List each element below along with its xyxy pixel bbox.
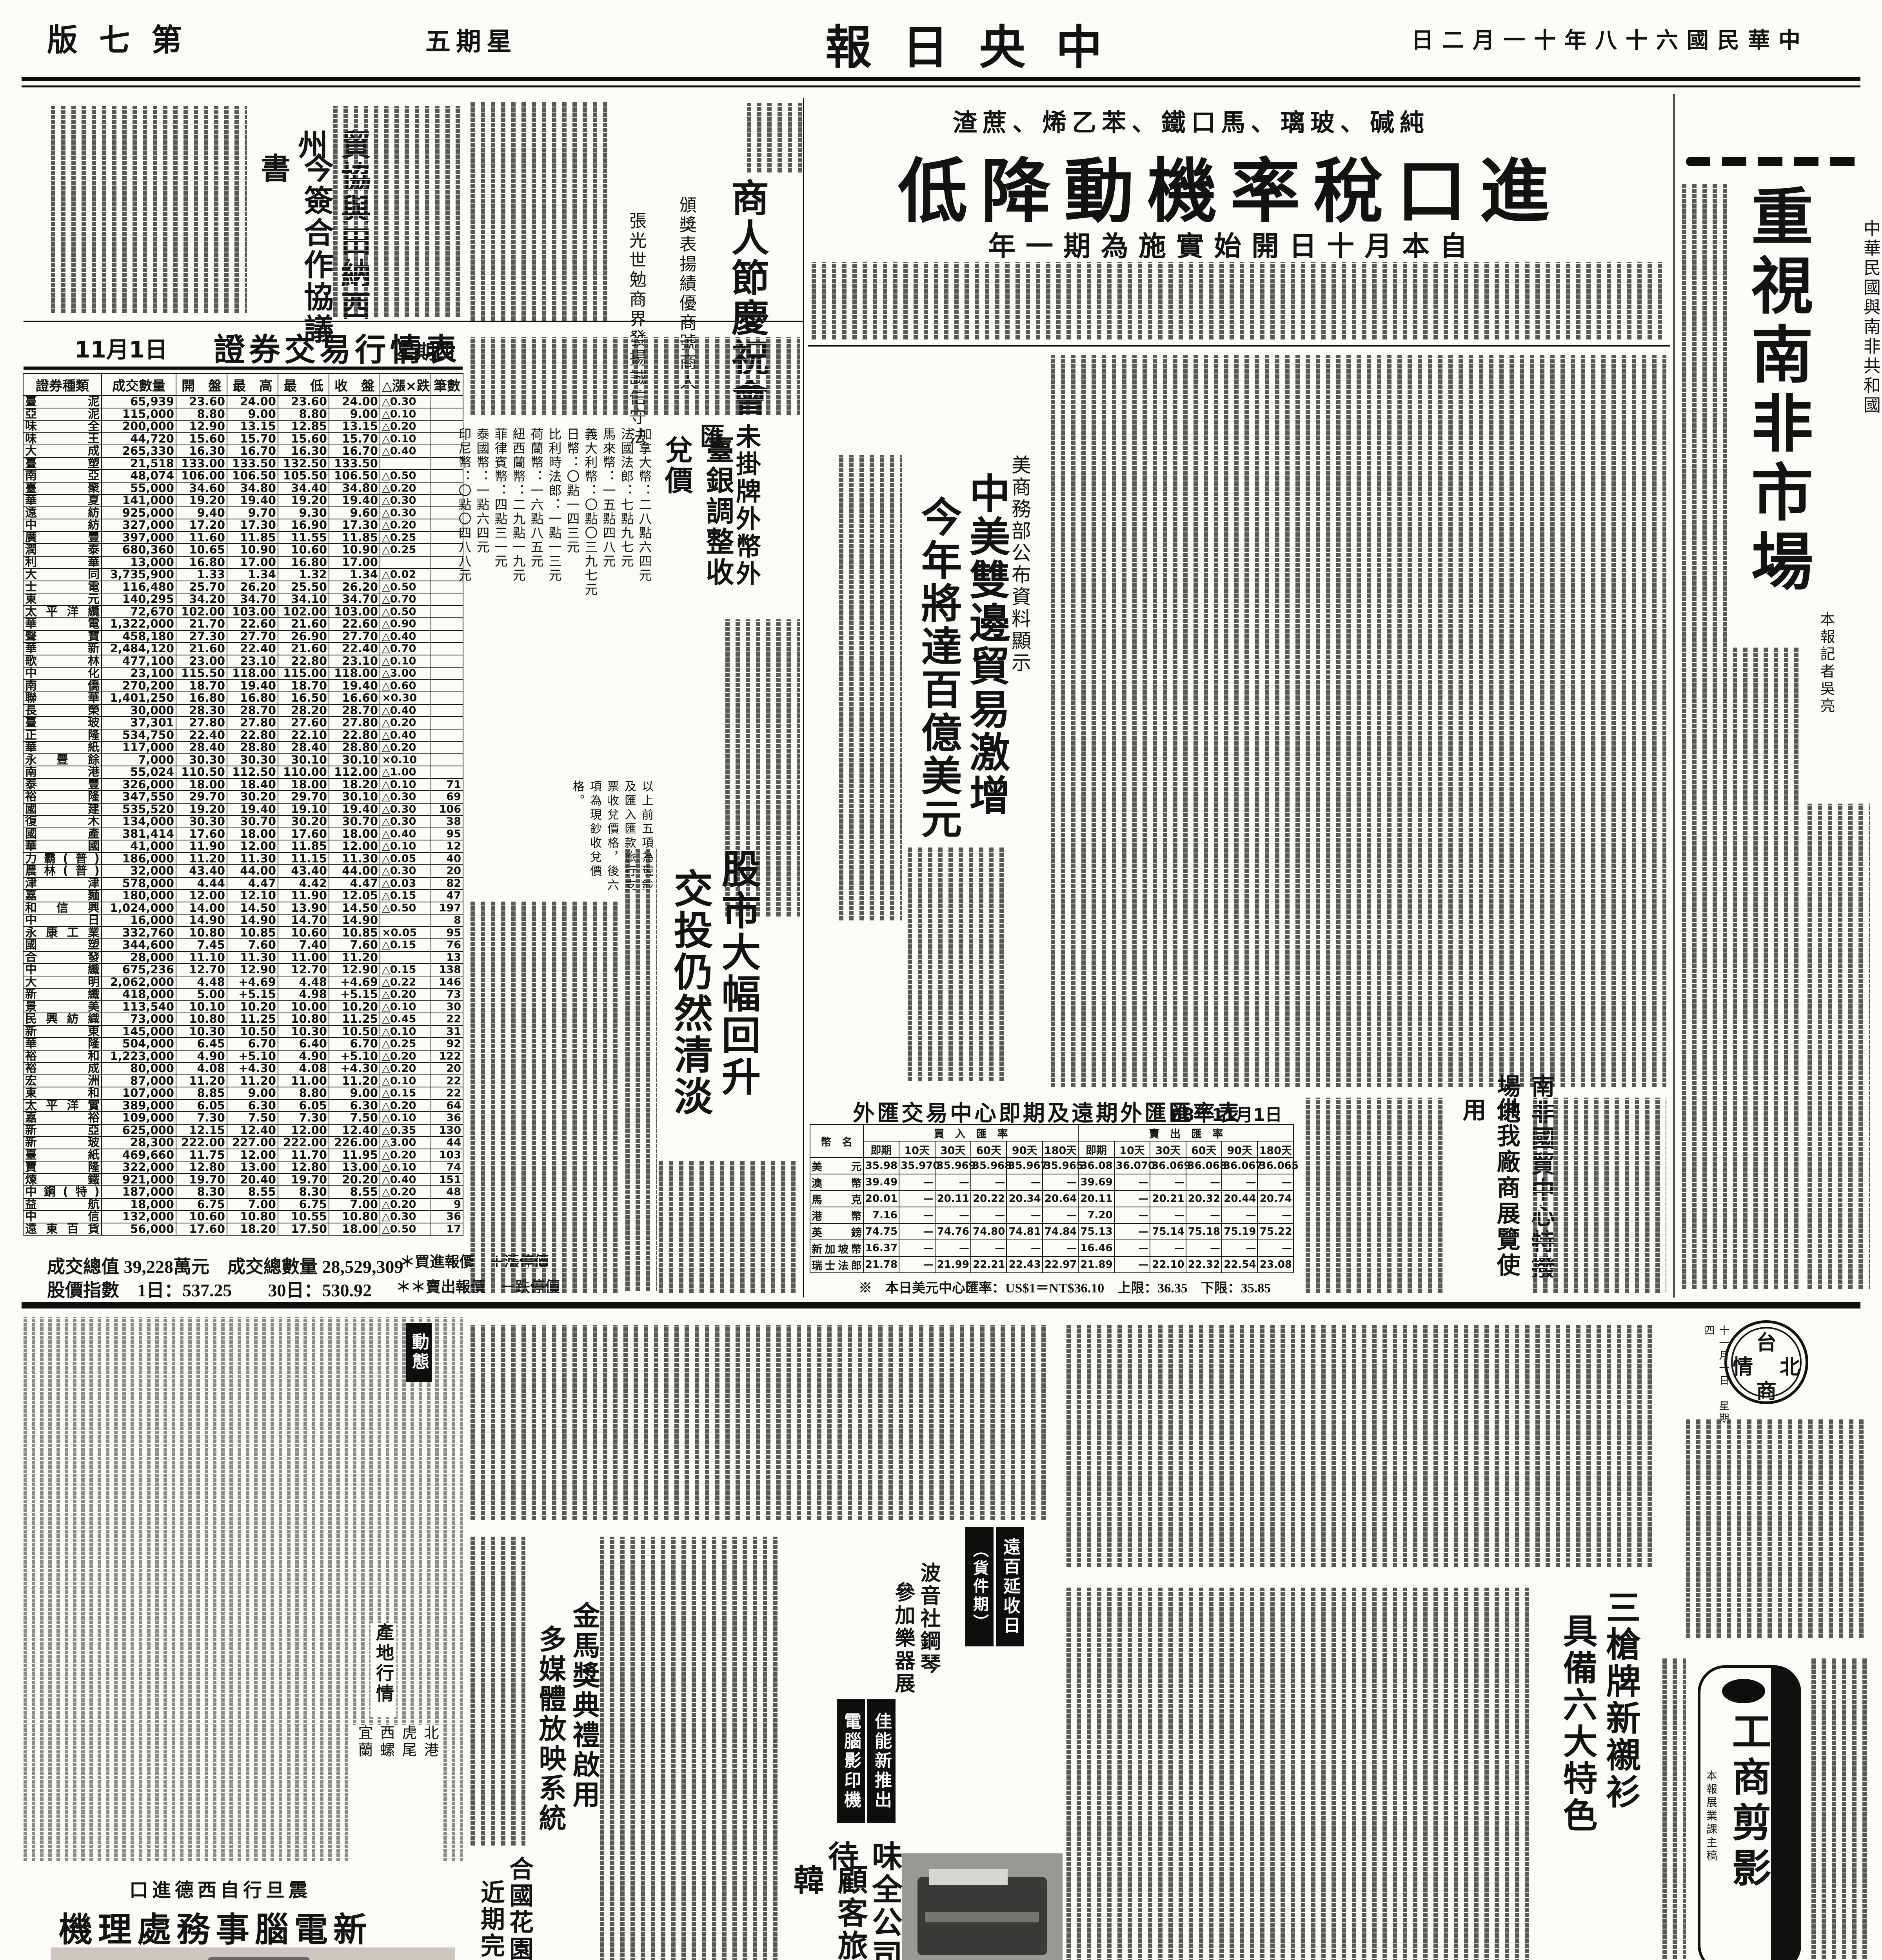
- section-rule: [808, 345, 1670, 347]
- goldhorse-headline-1: 金馬獎典禮啟用: [564, 1601, 603, 1821]
- body-text-block: [839, 455, 902, 921]
- body-text-block: [1533, 1098, 1666, 1294]
- masthead-rule-1: [22, 77, 1860, 81]
- body-text-block: [600, 1537, 780, 1960]
- table-row: 新纖418,0005.00+5.154.98+5.15△0.2073: [23, 988, 463, 1001]
- body-text-block: [1066, 1325, 1655, 1568]
- stock-table-weekday: 星期四: [396, 336, 455, 365]
- table-row: 中化23,100115.50118.00115.00118.00△3.00: [23, 667, 463, 680]
- stock-summary-2: 股價指數 1日：537.25 30日：530.92: [47, 1276, 372, 1302]
- table-row: 士電116,48025.7026.2025.5026.20△0.50: [23, 581, 463, 593]
- table-row: 新加坡幣16.37—————16.46—————: [810, 1240, 1293, 1256]
- table-row: 農林(普)32,00043.4044.0043.4044.00△0.3020: [23, 865, 463, 877]
- industry-banner-box: 工商剪影 本報展業課主稿: [1698, 1665, 1801, 1960]
- table-row: 美元35.9835.97035.96935.96835.96735.96536.…: [810, 1158, 1293, 1174]
- list-item: 比利時法郎：一點一三元: [545, 427, 563, 772]
- seal-char: 商: [1756, 1375, 1777, 1404]
- list-item: 馬來幣：一五點四八元: [599, 427, 617, 772]
- table-row: 津津578,0004.444.474.424.47△0.0382: [23, 877, 463, 890]
- seal-char: 情: [1733, 1350, 1753, 1380]
- shirts-headline-2: 具備六大特色: [1552, 1613, 1602, 1856]
- body-text-block: [1686, 1419, 1866, 1639]
- table-row: 正隆534,75022.4022.8022.1022.80△0.40: [23, 729, 463, 742]
- weichuan-headline-2: 顧客旅遊日韓: [784, 1864, 872, 1960]
- table-row: 裕隆347,55029.7030.2029.7030.10△0.3069: [23, 791, 463, 803]
- table-row: 裕和1,223,0004.90+5.104.90+5.10△0.20122: [23, 1050, 463, 1063]
- table-row: 華隆504,0006.456.706.406.70△0.2592: [23, 1038, 463, 1050]
- masthead-title: 中央日報: [825, 10, 1133, 77]
- table-row: 華電1,322,00021.7022.6021.6022.60△0.90: [23, 618, 463, 630]
- aurora-kicker: 震旦行自西德進口: [129, 1875, 311, 1902]
- office-machine-photo: [51, 1947, 455, 1960]
- body-text-block: [470, 102, 612, 321]
- table-row: 潤泰680,36010.6510.9010.6010.90△0.25: [23, 544, 463, 556]
- list-item: 西螺: [375, 1725, 397, 1905]
- table-row: 東和107,0008.859.008.809.00△0.1522: [23, 1087, 463, 1100]
- body-text-block: [1066, 1588, 1529, 1960]
- stock-table-header-row: 證券種類成交數量 開 盤最 高 最 低收 盤 △漲×跌筆數: [23, 374, 463, 396]
- copier-lid: [929, 1869, 1008, 1885]
- table-row: 中紡327,00017.2017.3016.9017.30△0.20: [23, 519, 463, 532]
- band-rule: [22, 1302, 1860, 1308]
- dynamics-label: 動態: [406, 1333, 431, 1372]
- table-top-rule: [24, 367, 463, 370]
- body-text-block: [470, 902, 619, 1294]
- list-item: 泰國幣：一點六四元: [472, 427, 490, 772]
- table-row: 味全200,00012.9013.1512.8513.15△0.20: [23, 420, 463, 433]
- table-row: 臺玻37,30127.8027.8027.6027.80△0.20: [23, 717, 463, 729]
- table-row: 瑞士法郎21.78—21.9922.2122.4322.9721.89—22.1…: [810, 1256, 1293, 1273]
- industry-banner-sub: 本報展業課主稿: [1703, 1770, 1719, 1927]
- list-item: 印尼幣：〇點〇四八八元: [454, 427, 472, 772]
- table-row: 力霸(普)186,00011.2011.3011.1511.30△0.0540: [23, 853, 463, 865]
- table-row: 嘉裕109,0007.307.507.307.50△0.1036: [23, 1112, 463, 1124]
- body-text-block: [1682, 184, 1727, 1290]
- lead-byline: 本報記者吳亮: [1815, 612, 1837, 776]
- table-row: 中信132,00010.6010.8010.5510.80△0.3036: [23, 1210, 463, 1223]
- aurora-headline: 新電腦事務處理機: [59, 1902, 372, 1951]
- table-row: 國塑344,6007.457.607.407.60△0.1576: [23, 939, 463, 951]
- body-text-block: [625, 849, 657, 1292]
- unlisted-fx-rates: 加拿大幣：二八點六四元法國法郎：七點九七元馬來幣：一五點四八元義大利幣：〇點〇三…: [543, 427, 653, 772]
- seal-char: 台: [1756, 1326, 1777, 1356]
- table-row: 南亞48,074106.00106.50105.50106.50△0.50: [23, 470, 463, 482]
- tariff-headline: 進口稅率機動降低: [898, 135, 1563, 236]
- table-row: 大明2,062,0004.48+4.694.48+4.69△0.22146: [23, 976, 463, 989]
- body-text-block: [1733, 647, 1804, 1290]
- seal-char: 北: [1780, 1350, 1800, 1380]
- table-row: 大成265,33016.3016.7016.3016.70△0.40: [23, 445, 463, 457]
- body-text-block: [908, 847, 1006, 1082]
- piano-headline-1: 波音社鋼琴: [914, 1562, 943, 1688]
- industry-banner-title: 工商剪影: [1719, 1711, 1776, 1931]
- body-text-block: [659, 1160, 800, 1294]
- goldhorse-headline-2: 多媒體放映系統: [530, 1625, 570, 1844]
- ornament-divider: [1686, 157, 1862, 166]
- fareast-label-1: 遠百延收日: [997, 1538, 1023, 1636]
- table-row: 東元140,29534.2034.7034.1034.70△0.70: [23, 593, 463, 606]
- body-text-block: [470, 337, 800, 416]
- table-row: 味王44,72015.6015.7015.6015.70△0.10: [23, 433, 463, 445]
- table-row: 臺塑21,518133.00133.50132.50133.50: [23, 457, 463, 470]
- shirts-headline-1: 三槍牌新襯衫: [1595, 1590, 1645, 1833]
- table-row: 國建535,52019.2019.4019.1019.40△0.30106: [23, 803, 463, 816]
- taipei-market-seal: 台 北 商 情: [1724, 1320, 1808, 1404]
- table-row: 南僑270,20018.7019.4018.7019.40△0.60: [23, 680, 463, 692]
- list-item: 日幣：〇點一四三元: [563, 427, 581, 772]
- body-text-block: [1808, 804, 1870, 1290]
- table-row: 永康工業332,76010.8010.8510.6010.85×0.0595: [23, 927, 463, 939]
- table-row: 華新2,484,12021.6022.4021.6022.40△0.70: [23, 642, 463, 655]
- tariff-kicker: 純碱、玻璃、馬口鐵、苯乙烯、蔗渣: [953, 103, 1430, 138]
- canon-box-2: 電腦影印機: [837, 1699, 865, 1823]
- fx-group-header: 幣 名 買 入 匯 率 賣 出 匯 率: [810, 1125, 1293, 1141]
- table-row: 嘉麵180,00012.0012.1011.9012.05△0.1547: [23, 889, 463, 902]
- copier-photo: [902, 1853, 1063, 1960]
- list-item: 加拿大幣：二八點六四元: [635, 427, 653, 772]
- body-text-block: [1051, 355, 1666, 1088]
- produce-label: 產地行情: [371, 1623, 396, 1717]
- table-row: 太平洋纜72,670102.00103.00102.00103.00△0.50: [23, 606, 463, 618]
- table-row: 新亞625,00012.1512.4012.0012.40△0.35130: [23, 1124, 463, 1137]
- table-row: 新玻28,300222.00227.00222.00226.00△3.0044: [23, 1136, 463, 1149]
- column-rule-mid: [803, 98, 804, 1298]
- stocknews-headline-2: 交投仍然清淡: [661, 868, 718, 1158]
- table-row: 煉鐵921,00019.7020.4019.7020.20△0.40151: [23, 1174, 463, 1186]
- table-row: 臺紙469,66011.7512.0011.7011.95△0.20103: [23, 1149, 463, 1161]
- table-row: 中日16,00014.9014.9014.7014.908: [23, 914, 463, 927]
- list-item: 法國法郎：七點九七元: [617, 427, 635, 772]
- list-item: 北港: [419, 1725, 441, 1905]
- lead-kicker: 中華民國與南非共和國: [1858, 220, 1882, 808]
- list-item: 宜蘭: [353, 1725, 375, 1905]
- table-row: 泰豐326,00018.0018.4018.0018.20△0.1071: [23, 779, 463, 791]
- body-text-block: [470, 1325, 1051, 1521]
- table-row: 和信興1,024,00014.0014.5013.9014.50△0.50197: [23, 902, 463, 915]
- table-row: 大同3,735,9001.331.341.321.34△0.02: [23, 568, 463, 581]
- fx-table: 幣 名 買 入 匯 率 賣 出 匯 率 即期10天 30天60天 90天180天…: [810, 1124, 1294, 1273]
- table-row: 民興紡織73,00010.8011.2510.8011.25△0.4522: [23, 1013, 463, 1025]
- table-row: 歌林477,10023.0023.1022.8023.10△0.10: [23, 655, 463, 668]
- table-row: 利華13,00016.8017.0016.8017.00: [23, 556, 463, 569]
- canon-box-1: 佳能新推出: [867, 1699, 896, 1823]
- body-text-block: [747, 103, 802, 173]
- table-row: 長榮30,00028.3028.7028.2028.70△0.40: [23, 704, 463, 717]
- seal-side-note: 十一月一日 星期四: [1702, 1325, 1731, 1427]
- table-row: 永豐餘7,00030.3030.3030.1030.10×0.10: [23, 754, 463, 766]
- machine-2: [208, 1957, 310, 1960]
- table-row: 太平洋實389,0006.056.306.056.30△0.2064: [23, 1100, 463, 1112]
- trade-headline-2: 今年將達百億美元: [908, 496, 967, 841]
- fx-footnote: ※ 本日美元中心匯率：US$1＝NT$36.10 上限：36.35 下限：35.…: [859, 1277, 1271, 1296]
- list-item: 菲律賓幣：四點三一元: [490, 427, 509, 772]
- list-item: 紐西蘭幣：二九點一九元: [509, 427, 527, 772]
- body-text-block: [812, 262, 1666, 340]
- dynamics-label-box: 動態: [406, 1323, 432, 1382]
- table-row: 臺泥65,93923.6024.0023.6024.00△0.30: [23, 396, 463, 408]
- table-row: 中鋼(特)187,0008.308.558.308.55△0.2048: [23, 1186, 463, 1198]
- stock-table-date: 11月1日: [74, 331, 167, 364]
- fareast-box-2: （貨件期）: [965, 1527, 994, 1646]
- table-row: 廣豐397,00011.6011.8511.5511.85△0.25: [23, 532, 463, 544]
- stock-table: 證券種類成交數量 開 盤最 高 最 低收 盤 △漲×跌筆數 臺泥65,93923…: [23, 373, 463, 1236]
- table-row: 聯華1,401,25016.8016.8016.5016.60×0.30: [23, 692, 463, 704]
- table-row: 合發28,00011.1011.3011.0011.2013: [23, 951, 463, 964]
- table-row: 宏洲87,00011.2011.2011.0011.20△0.1022: [23, 1075, 463, 1087]
- fx-sub-header: 即期10天 30天60天 90天180天 即期10天 30天60天 90天180…: [810, 1141, 1293, 1158]
- stock-table-body: 臺泥65,93923.6024.0023.6024.00△0.30亞泥115,0…: [23, 396, 463, 1235]
- column-rule-right: [1673, 94, 1675, 1298]
- table-row: 澳幣39.49—————39.69—————: [810, 1174, 1293, 1191]
- table-row: 南港55,024110.50112.50110.00112.00△1.00: [23, 766, 463, 779]
- table-row: 華國41,00011.9012.0011.8512.00△0.1012: [23, 840, 463, 853]
- banner-dot-icon: [1722, 1679, 1765, 1703]
- table-row: 華夏141,00019.2019.4019.2019.40△0.30: [23, 494, 463, 507]
- table-row: 馬克20.01—20.1120.2220.3420.6420.11—20.212…: [810, 1191, 1293, 1207]
- table-row: 聲寶458,18027.3027.7026.9027.70△0.40: [23, 630, 463, 643]
- edition-label: 第七版: [47, 16, 203, 60]
- body-text-block: [1811, 1658, 1870, 1960]
- piano-headline-2: 參加樂器展: [888, 1582, 917, 1699]
- table-row: 復木134,00030.3030.7030.2030.70△0.3038: [23, 815, 463, 828]
- table-row: 裕成80,0004.08+4.304.08+4.30△0.2020: [23, 1062, 463, 1075]
- table-row: 臺聚55,00034.6034.8034.4034.80△0.20: [23, 482, 463, 495]
- canon-label-2: 電腦影印機: [838, 1712, 863, 1810]
- table-row: 景美113,54010.1010.2010.0010.20△0.1030: [23, 1001, 463, 1013]
- table-row: 新東145,00010.3010.5010.3010.50△0.1031: [23, 1025, 463, 1038]
- fx-table-body: 美元35.9835.97035.96935.96835.96735.96536.…: [810, 1158, 1293, 1273]
- table-row: 華紙117,00028.4028.8028.4028.80△0.20: [23, 741, 463, 754]
- table-row: 港幣7.16—————7.20—————: [810, 1207, 1293, 1223]
- table-row: 亞泥115,0008.809.008.809.00△0.10: [23, 408, 463, 421]
- table-row: 國產381,41417.6018.0017.6018.00△0.4095: [23, 828, 463, 840]
- body-text-block: [333, 106, 463, 318]
- fareast-box-1: 遠百延收日: [996, 1527, 1024, 1646]
- table-row: 寶隆322,00012.8013.0012.8013.00△0.1074: [23, 1161, 463, 1174]
- masthead-date: 中華民國六十八年十一月二日: [1411, 23, 1809, 54]
- table-row: 遠東百貨56,00017.6018.2017.5018.00△0.5017: [23, 1223, 463, 1236]
- trade-center-subhead-2: 供我廠商展覽使用: [1455, 1098, 1524, 1286]
- table-row: 英鎊74.75—74.7674.8074.8174.8475.13—75.147…: [810, 1223, 1293, 1240]
- weekday-label: 星期五: [425, 22, 517, 58]
- body-text-block: [1306, 1098, 1447, 1294]
- tariff-subhead: 自本月十日開始實施為期一年: [988, 224, 1477, 264]
- table-row: 中纖675,23612.7012.9012.7012.90△0.15138: [23, 964, 463, 976]
- list-item: 義大利幣：〇點〇三九七元: [581, 427, 599, 772]
- body-text-block: [51, 106, 247, 314]
- stock-summary-1: 成交總值 39,228萬元 成交總數量 28,529,309: [47, 1252, 403, 1278]
- list-item: 荷蘭幣：一六點八五元: [527, 427, 545, 772]
- body-text-block: [470, 1537, 525, 1846]
- table-row: 遠紡925,0009.409.709.309.60△0.30: [23, 507, 463, 519]
- produce-places: 北港虎尾西螺宜蘭: [353, 1725, 441, 1905]
- unlisted-fx-headline-2: 臺銀調整收兌價: [656, 435, 738, 615]
- garden-headline-2: 近期完工: [472, 1880, 508, 1960]
- body-text-block: [1662, 1658, 1686, 1960]
- table-row: 益航18,0006.757.006.757.00△0.209: [23, 1198, 463, 1211]
- merchants-subhead-2: 張光世勉商界發揚誠信守法: [623, 212, 649, 455]
- list-item: 虎尾: [397, 1725, 419, 1905]
- fx-table-date: 68年11月1日: [1170, 1101, 1282, 1126]
- canon-label-1: 佳能新推出: [869, 1712, 894, 1810]
- masthead-rule-2: [22, 85, 1860, 87]
- newspaper-page: 第七版 星期五 中央日報 中華民國六十八年十一月二日 中華民國與南非共和國 重視…: [0, 0, 1882, 1960]
- fareast-label-2: （貨件期）: [968, 1542, 991, 1632]
- copier-tray: [925, 1912, 1039, 1922]
- section-rule: [24, 321, 804, 322]
- lead-headline: 重視南非市場: [1731, 184, 1821, 623]
